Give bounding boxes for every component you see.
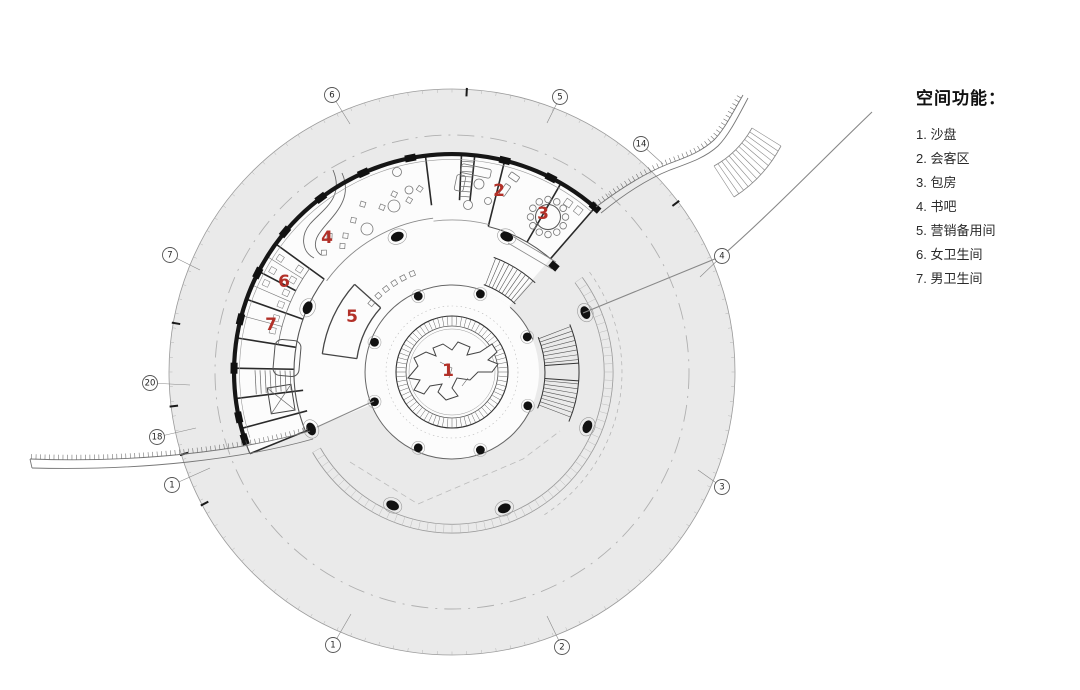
svg-text:18: 18 xyxy=(152,433,163,443)
legend-item-5: 5. 营销备用间 xyxy=(916,219,1076,243)
legend-item-6: 6. 女卫生间 xyxy=(916,243,1076,267)
legend-item-3: 3. 包房 xyxy=(916,171,1076,195)
room-marker-4: 4 xyxy=(321,228,333,248)
svg-text:20: 20 xyxy=(145,379,156,389)
room-marker-2: 2 xyxy=(493,181,505,201)
legend-item-2: 2. 会客区 xyxy=(916,147,1076,171)
svg-text:4: 4 xyxy=(719,252,724,262)
room-marker-1: 1 xyxy=(442,361,454,381)
legend-item-4: 4. 书吧 xyxy=(916,195,1076,219)
svg-text:1: 1 xyxy=(169,481,174,491)
legend-item-1: 1. 沙盘 xyxy=(916,123,1076,147)
svg-text:5: 5 xyxy=(557,93,562,103)
legend-item-7: 7. 男卫生间 xyxy=(916,267,1076,291)
legend: 空间功能： 1. 沙盘2. 会客区3. 包房4. 书吧5. 营销备用间6. 女卫… xyxy=(916,84,1076,291)
svg-text:14: 14 xyxy=(636,140,647,150)
svg-text:7: 7 xyxy=(167,251,172,261)
floorplan-page: 65144321118207 1234567 空间功能： 1. 沙盘2. 会客区… xyxy=(0,0,1080,690)
room-marker-3: 3 xyxy=(537,204,549,224)
legend-item-list: 1. 沙盘2. 会客区3. 包房4. 书吧5. 营销备用间6. 女卫生间7. 男… xyxy=(916,123,1076,291)
svg-text:3: 3 xyxy=(719,483,724,493)
svg-text:1: 1 xyxy=(330,641,335,651)
room-marker-5: 5 xyxy=(346,307,358,327)
legend-title: 空间功能： xyxy=(916,84,1076,109)
svg-text:6: 6 xyxy=(329,91,334,101)
svg-text:2: 2 xyxy=(559,643,564,653)
room-marker-6: 6 xyxy=(278,272,290,292)
room-marker-7: 7 xyxy=(265,315,277,335)
